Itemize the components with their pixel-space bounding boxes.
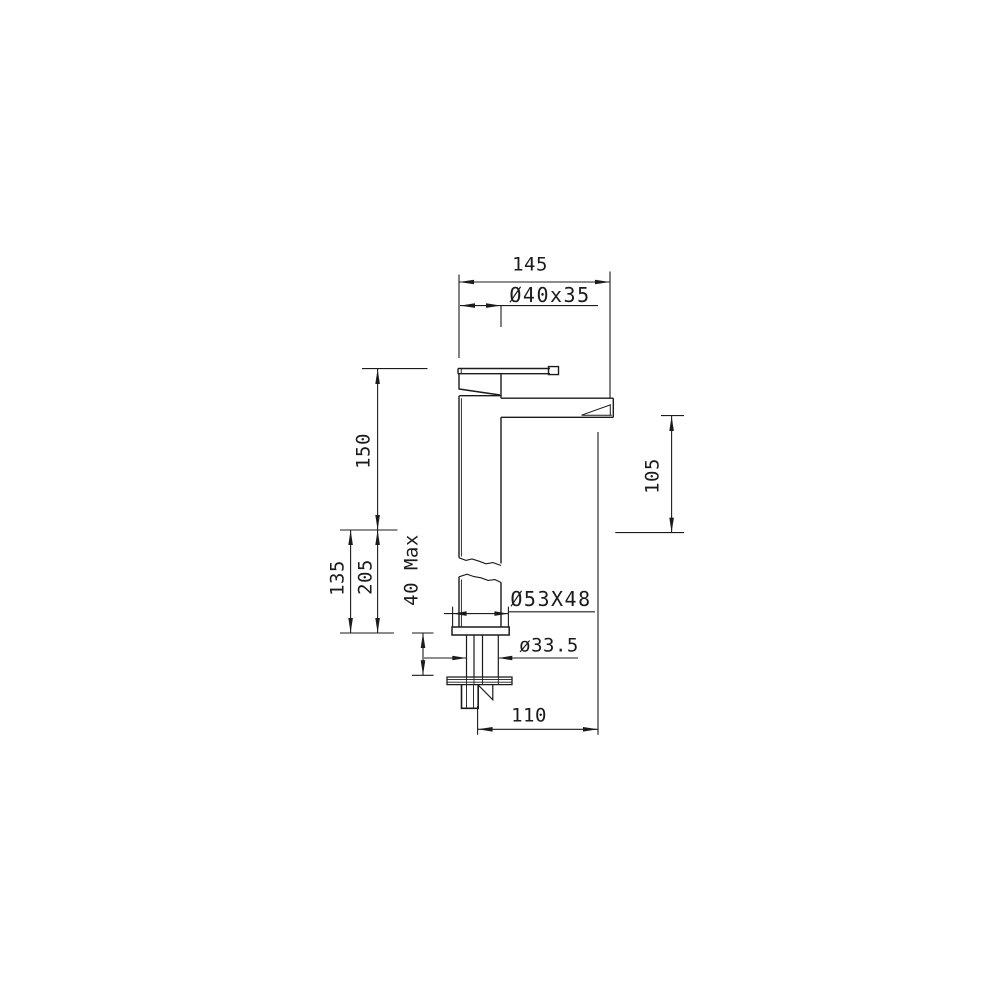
faucet-line-drawing [0, 0, 1000, 1000]
locknut-washer [447, 677, 512, 685]
dim-label-deck-thickness: 40 Max [403, 534, 422, 606]
base-flange [452, 627, 509, 635]
handle-base-wedge [459, 374, 501, 399]
dim-label-mid-height-205: 205 [357, 559, 376, 595]
body-column-lower [459, 577, 501, 627]
break-wave-bottom [459, 574, 501, 582]
break-wave-top [459, 558, 501, 566]
dim-label-spout-reach: 110 [511, 707, 547, 726]
faucet-body-outline [447, 367, 613, 709]
dim-110-lines [478, 432, 598, 735]
dim-label-base-footprint: Ø53X48 [510, 589, 591, 609]
handle-lever [458, 369, 550, 374]
dimension-arrowheads [348, 280, 674, 732]
shank-tubes [467, 635, 499, 677]
body-column-upper [459, 396, 501, 564]
dim-label-overall-depth: 145 [512, 256, 548, 275]
dimension-lines [340, 272, 684, 735]
threaded-nipple-threads [467, 685, 474, 709]
threaded-nipple [462, 685, 479, 709]
drawing-page: 145 Ø40x35 150 135 205 40 Max 105 Ø53X48… [0, 0, 1000, 1000]
dim-label-handle-block: Ø40x35 [509, 285, 590, 305]
supply-pipe-flap [478, 685, 493, 700]
dim-label-spout-height: 105 [644, 458, 663, 494]
dim-label-shank-diameter: ø33.5 [519, 637, 579, 656]
dim-40x35-lines [460, 306, 598, 327]
spout-inner-channel [582, 405, 612, 416]
dim-label-mid-height-135: 135 [329, 560, 348, 596]
dim-label-upper-body-height: 150 [355, 433, 374, 469]
spout-outline [501, 398, 613, 417]
locknut-washer-lines [447, 677, 512, 685]
